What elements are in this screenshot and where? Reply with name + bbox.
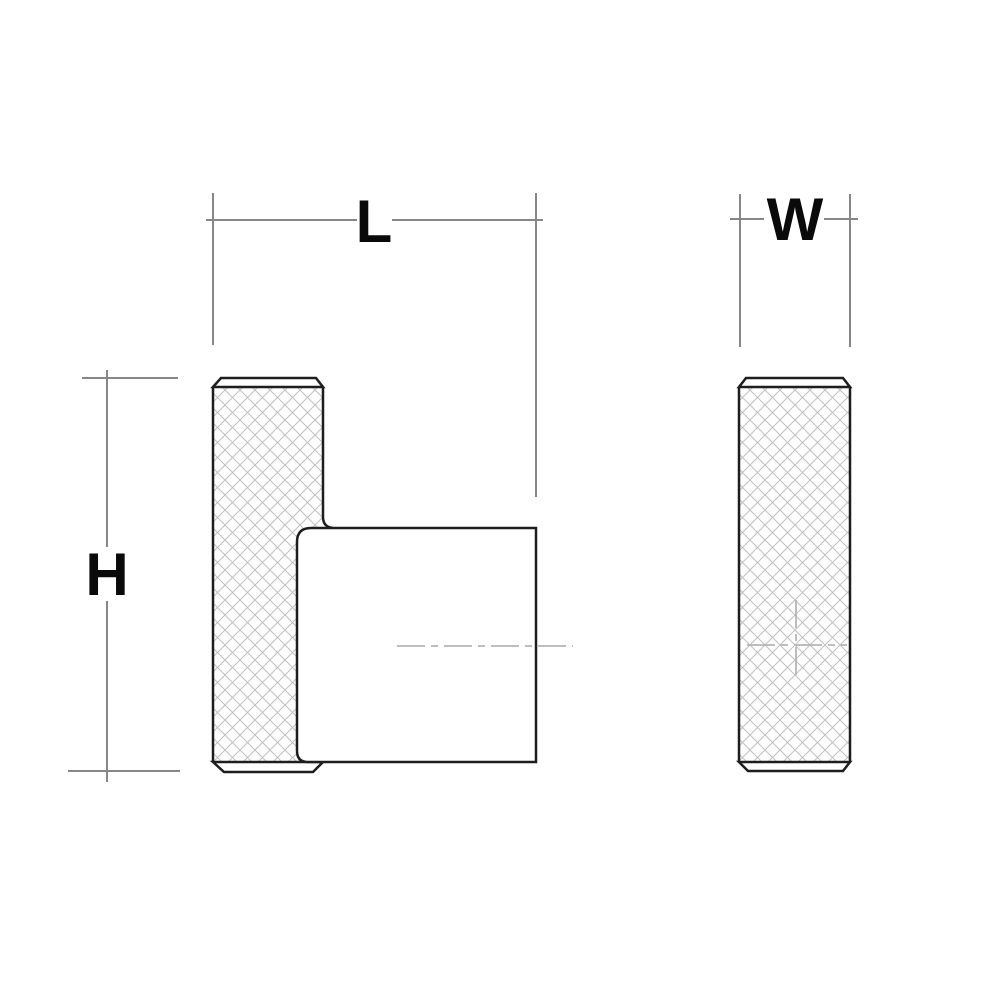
technical-drawing: L W H xyxy=(0,0,1000,1000)
drawing-page: L W H xyxy=(0,0,1000,1000)
dimension-height: H xyxy=(68,370,180,782)
front-knurl-top-cap xyxy=(213,378,323,387)
side-knurl-foot xyxy=(739,762,850,771)
width-label: W xyxy=(767,186,824,253)
side-view xyxy=(739,378,850,771)
front-view xyxy=(213,378,536,772)
hook-body xyxy=(297,528,536,762)
side-knurl-top-cap xyxy=(739,378,850,387)
side-knurl-hatch xyxy=(739,387,850,762)
length-label: L xyxy=(356,188,393,255)
dimension-width: W xyxy=(730,186,858,347)
height-label: H xyxy=(85,541,128,608)
front-knurl-foot xyxy=(213,762,323,772)
front-knurl-right-edge xyxy=(323,387,333,528)
